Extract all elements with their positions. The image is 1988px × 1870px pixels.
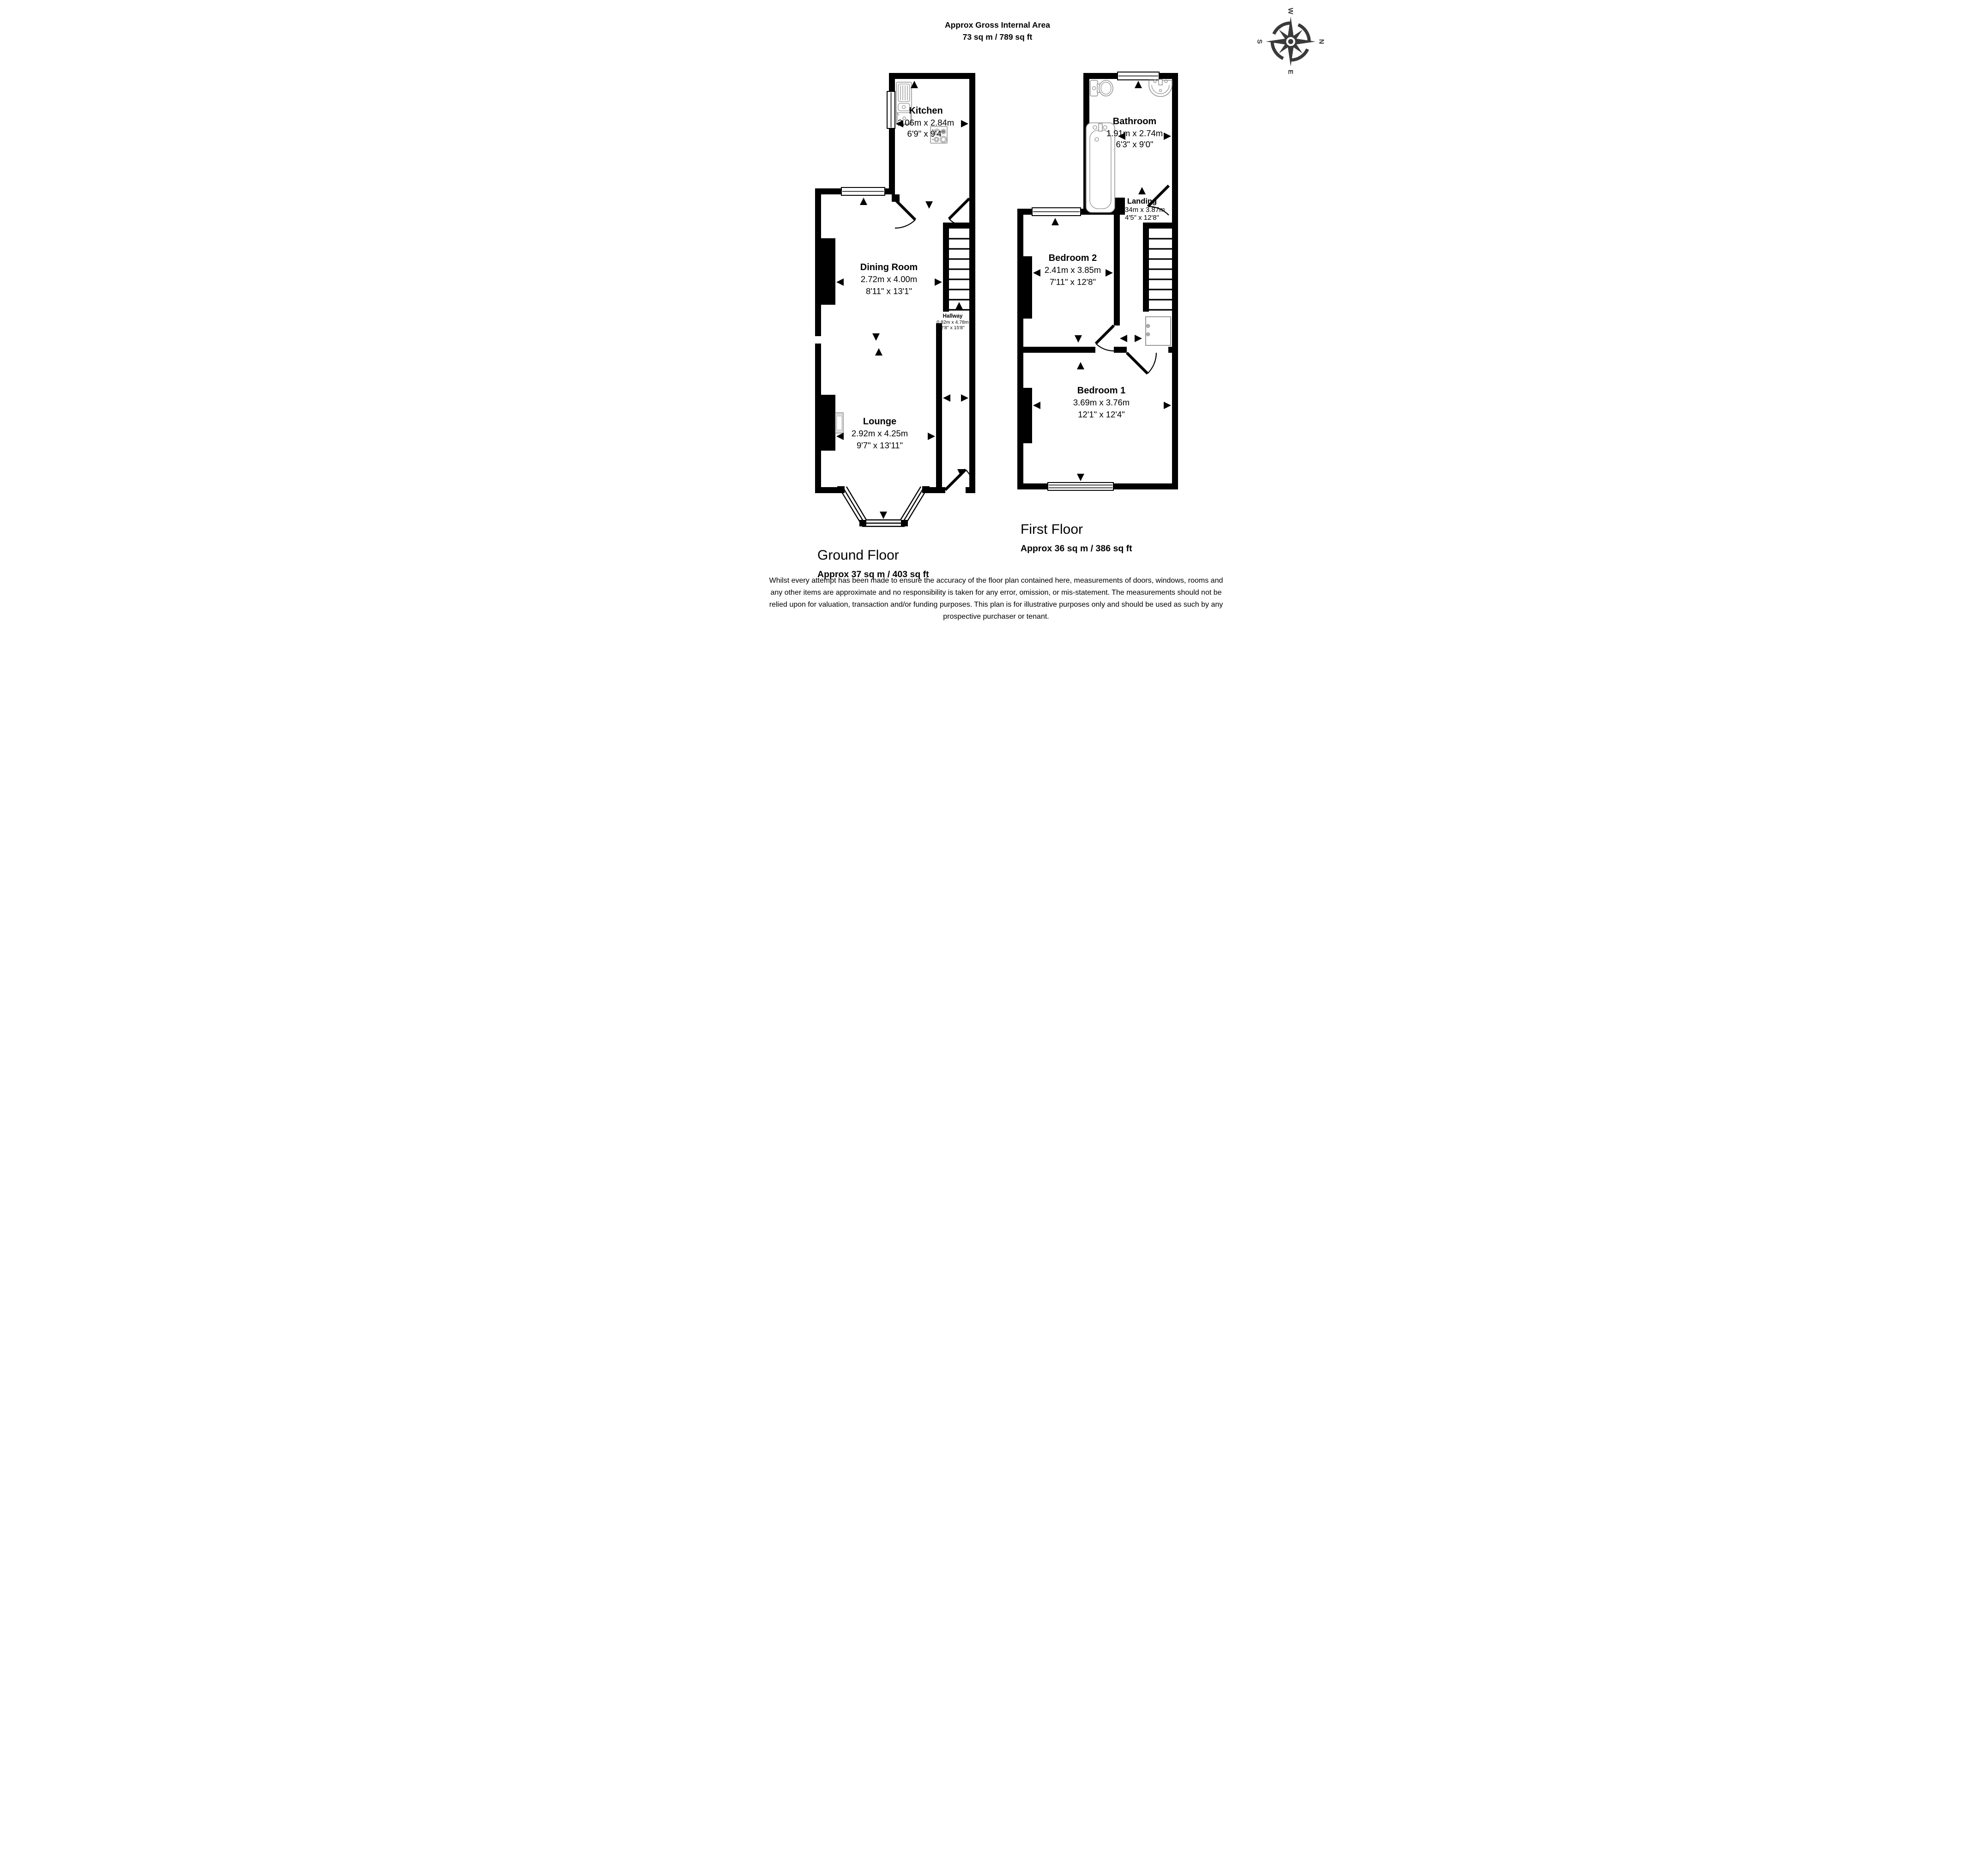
disclaimer: Whilst every attempt has been made to en…: [769, 577, 1223, 621]
room-dim-imperial: 6'3" x 9'0": [1116, 139, 1154, 149]
room-name: Hallway: [943, 314, 963, 319]
dim-arrow-left: [1120, 335, 1127, 342]
first-floor-title: First Floor: [1021, 522, 1083, 537]
ground-stairs-icon: [949, 229, 969, 310]
room-dim-metric: 2.92m x 4.25m: [852, 428, 908, 438]
room-dim-imperial: 7'11" x 12'8": [1050, 277, 1096, 287]
lounge-chimney-breast: [815, 395, 835, 451]
fireplace-icon: [835, 413, 843, 433]
basin-icon: [1149, 79, 1172, 97]
room-dim-imperial: 8'11" x 13'1": [866, 286, 912, 296]
bedroom1-door-icon: [1127, 353, 1156, 374]
header: Approx Gross Internal Area 73 sq m / 789…: [945, 20, 1050, 42]
kitchen-door-icon: [895, 199, 915, 228]
first-floor-area: Approx 36 sq m / 386 sq ft: [1021, 543, 1132, 554]
cupboard-icon: [1146, 317, 1171, 345]
page-title: Approx Gross Internal Area: [945, 20, 1050, 30]
dim-arrow-left: [836, 278, 844, 286]
room-dim-imperial: 6'9" x 9'4": [907, 129, 945, 139]
dim-arrow-down: [872, 333, 880, 341]
dim-arrow-right: [961, 394, 968, 402]
dining-room-label: Dining Room 2.72m x 4.00m 8'11" x 13'1": [860, 262, 918, 296]
disclaimer-line: Whilst every attempt has been made to en…: [769, 577, 1223, 585]
dining-chimney-breast: [815, 238, 835, 305]
room-name: Bedroom 2: [1049, 253, 1097, 263]
bedroom1-window-icon: [1048, 483, 1113, 490]
room-dim-imperial: 2'8" x 15'8": [941, 325, 965, 331]
disclaimer-line: relied upon for valuation, transaction a…: [769, 601, 1223, 609]
dim-arrow-left: [1033, 269, 1040, 277]
dim-arrow-up: [860, 198, 867, 205]
first-floor-plan: Bathroom 1.91m x 2.74m 6'3" x 9'0" Landi…: [1017, 72, 1178, 554]
dim-arrow-right: [1135, 335, 1142, 342]
toilet-icon: [1090, 80, 1113, 96]
dim-arrow-right: [935, 278, 942, 286]
compass-east-label: E: [1287, 70, 1294, 74]
bay-window-icon: [837, 486, 930, 526]
room-dim-imperial: 9'7" x 13'11": [857, 440, 903, 450]
room-name: Bathroom: [1113, 116, 1156, 127]
dim-arrow-right: [1164, 133, 1171, 140]
bedroom1-chimney-breast: [1017, 388, 1032, 443]
compass-west-label: W: [1287, 8, 1294, 15]
room-dim-metric: 2.41m x 3.85m: [1045, 265, 1101, 275]
room-dim-metric: 2.06m x 2.84m: [898, 118, 954, 127]
landing-label: Landing 1.34m x 3.87m 4'5" x 12'8": [1119, 197, 1165, 222]
compass-south-label: S: [1256, 39, 1263, 44]
compass-north-label: N: [1317, 39, 1325, 44]
dim-arrow-up: [1077, 362, 1084, 369]
room-dim-metric: 3.69m x 3.76m: [1073, 398, 1130, 407]
hallway-label: Hallway 0.82m x 4.78m 2'8" x 15'8": [937, 314, 969, 331]
disclaimer-line: prospective purchaser or tenant.: [943, 613, 1049, 621]
dim-arrow-up: [1135, 81, 1142, 88]
dim-arrow-right: [961, 120, 968, 127]
dim-arrow-right: [928, 433, 935, 440]
dim-arrow-left: [943, 394, 950, 402]
room-dim-metric: 1.91m x 2.74m: [1106, 128, 1163, 138]
bedroom1-label: Bedroom 1 3.69m x 3.76m 12'1" x 12'4": [1073, 386, 1130, 419]
room-dim-metric: 2.72m x 4.00m: [861, 274, 917, 284]
dim-arrow-left: [1033, 402, 1040, 409]
page-title-area: 73 sq m / 789 sq ft: [963, 32, 1033, 42]
dim-arrow-down: [880, 512, 887, 519]
bedroom2-label: Bedroom 2 2.41m x 3.85m 7'11" x 12'8": [1045, 253, 1101, 287]
dining-window-icon: [841, 187, 885, 195]
bedroom2-chimney-breast: [1017, 256, 1032, 319]
dim-arrow-up: [1051, 218, 1059, 225]
ground-floor-title: Ground Floor: [817, 548, 899, 563]
dim-arrow-down: [1075, 335, 1082, 343]
bathroom-window-icon: [1118, 72, 1159, 80]
disclaimer-line: any other items are approximate and no r…: [770, 589, 1221, 597]
kitchen-window-icon: [887, 91, 895, 128]
room-name: Landing: [1127, 197, 1157, 205]
bedroom2-window-icon: [1032, 208, 1081, 216]
room-name: Bedroom 1: [1077, 386, 1125, 396]
dim-arrow-down: [1077, 474, 1084, 481]
dim-arrow-down: [925, 201, 933, 209]
floor-plan-page: Approx Gross Internal Area 73 sq m / 789…: [663, 0, 1325, 623]
dim-arrow-left: [836, 433, 844, 440]
dim-arrow-right: [1106, 269, 1113, 277]
lounge-label: Lounge 2.92m x 4.25m 9'7" x 13'11": [852, 416, 908, 450]
room-dim-imperial: 12'1" x 12'4": [1078, 410, 1124, 419]
dim-arrow-right: [1164, 402, 1171, 409]
compass-rose-icon: N E S W: [1256, 8, 1325, 74]
dim-arrow-up: [1138, 187, 1146, 194]
first-stairs-icon: [1149, 229, 1172, 310]
room-name: Dining Room: [860, 262, 918, 272]
room-name: Lounge: [863, 416, 896, 427]
room-name: Kitchen: [909, 106, 943, 116]
dim-arrow-up: [875, 348, 882, 356]
floor-plan-drawing: Approx Gross Internal Area 73 sq m / 789…: [663, 0, 1325, 623]
room-dim-metric: 0.82m x 4.78m: [937, 320, 969, 325]
bedroom2-door-icon: [1096, 326, 1114, 351]
room-dim-metric: 1.34m x 3.87m: [1119, 206, 1165, 214]
ground-floor-plan: Kitchen 2.06m x 2.84m 6'9" x 9'4" Dining…: [815, 73, 975, 579]
room-dim-imperial: 4'5" x 12'8": [1125, 214, 1159, 222]
